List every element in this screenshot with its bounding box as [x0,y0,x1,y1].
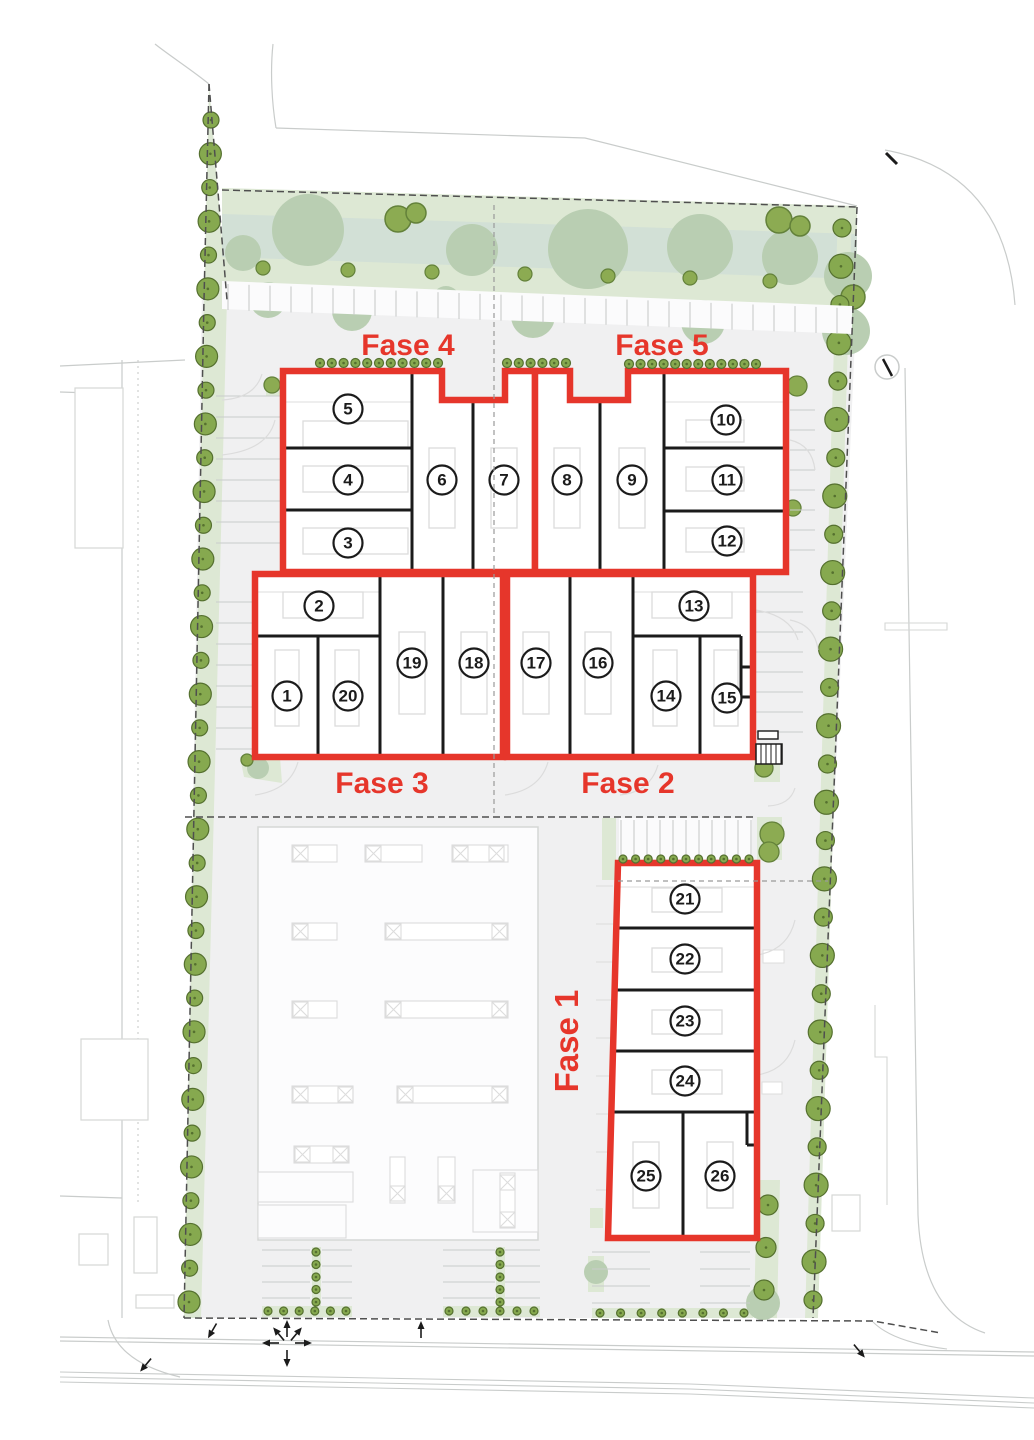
plot-10: 10 [712,406,741,435]
plot-21: 21 [671,885,700,914]
direction-arrow-icon [137,1356,153,1374]
plot-8: 8 [553,466,582,495]
plot-12: 12 [713,527,742,556]
plot-2: 2 [305,592,334,621]
plot-13: 13 [680,592,709,621]
plot-number-21: 21 [676,890,695,909]
plot-number-9: 9 [627,471,636,490]
plot-23: 23 [671,1007,700,1036]
plot-number-17: 17 [527,654,546,673]
plot-17: 17 [522,649,551,678]
fase-5-label: Fase 5 [615,329,708,362]
plot-number-12: 12 [718,532,737,551]
direction-arrow-icon [205,1322,220,1340]
plot-number-19: 19 [403,654,422,673]
plot-number-8: 8 [562,471,571,490]
plot-number-22: 22 [676,950,695,969]
plot-number-25: 25 [637,1167,656,1186]
plot-9: 9 [618,466,647,495]
plot-6: 6 [428,466,457,495]
plot-number-16: 16 [589,654,608,673]
plot-number-10: 10 [717,411,736,430]
plot-number-1: 1 [282,687,291,706]
fase-3-label: Fase 3 [335,767,428,800]
plot-1: 1 [273,682,302,711]
plot-16: 16 [584,649,613,678]
plot-number-4: 4 [343,471,353,490]
phase-fase-5: 89101112Fase 5 [503,329,787,572]
direction-arrow-icon [284,1320,291,1337]
plot-number-26: 26 [711,1167,730,1186]
plot-number-6: 6 [437,471,446,490]
plot-14: 14 [652,682,681,711]
plot-19: 19 [398,649,427,678]
direction-arrow-icon [418,1321,425,1338]
plot-11: 11 [713,466,742,495]
plot-number-3: 3 [343,534,352,553]
fase-1-label: Fase 1 [548,990,585,1093]
fase-4-label: Fase 4 [361,329,455,362]
plot-number-5: 5 [343,400,352,419]
plot-3: 3 [334,529,363,558]
plot-4: 4 [334,466,363,495]
direction-arrow-icon [284,1350,291,1367]
plot-22: 22 [671,945,700,974]
plot-number-7: 7 [499,471,508,490]
building-layer [258,827,538,1240]
direction-arrow-icon [851,1342,867,1360]
plot-number-18: 18 [465,654,484,673]
site-plan-svg: 54367Fase 489101112Fase 521201918Fase 31… [0,0,1034,1440]
plot-25: 25 [632,1162,661,1191]
plot-20: 20 [334,682,363,711]
fase-2-label: Fase 2 [581,767,674,800]
plot-number-11: 11 [718,471,736,490]
plot-5: 5 [334,395,363,424]
plot-26: 26 [706,1162,735,1191]
plot-number-13: 13 [685,597,704,616]
plot-15: 15 [713,684,742,713]
plot-24: 24 [671,1067,700,1096]
plot-number-15: 15 [718,689,737,708]
plot-number-14: 14 [657,687,676,706]
plot-number-2: 2 [314,597,323,616]
plot-number-20: 20 [339,687,358,706]
plot-number-24: 24 [676,1072,695,1091]
site-plan-page: 54367Fase 489101112Fase 521201918Fase 31… [0,0,1034,1440]
plot-18: 18 [460,649,489,678]
plot-number-23: 23 [676,1012,695,1031]
